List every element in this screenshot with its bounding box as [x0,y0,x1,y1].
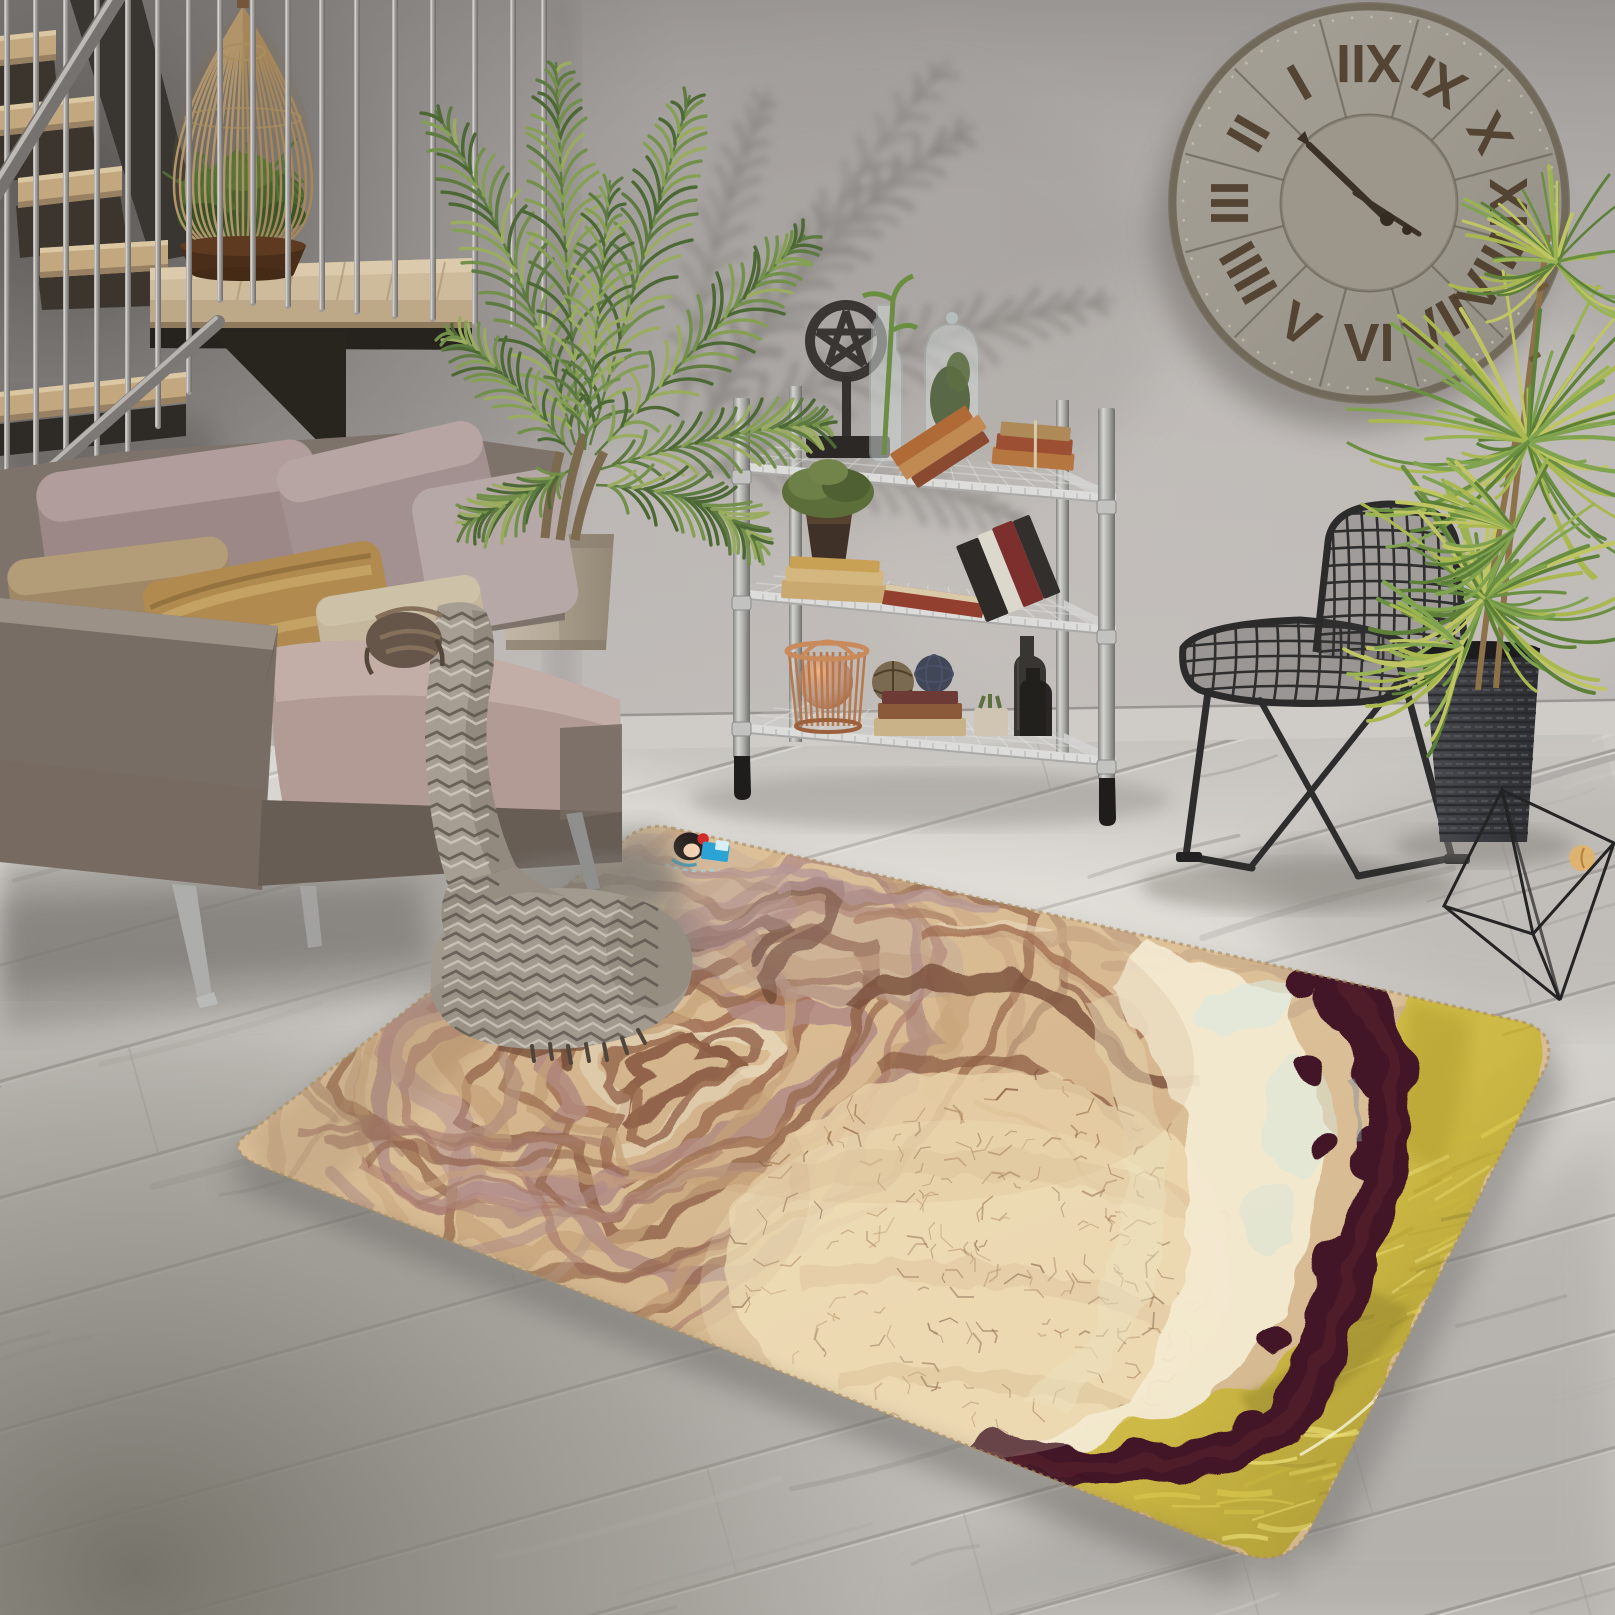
svg-text:XII: XII [1336,33,1402,93]
svg-text:VI: VI [1343,313,1394,373]
svg-text:III: III [1199,180,1259,225]
